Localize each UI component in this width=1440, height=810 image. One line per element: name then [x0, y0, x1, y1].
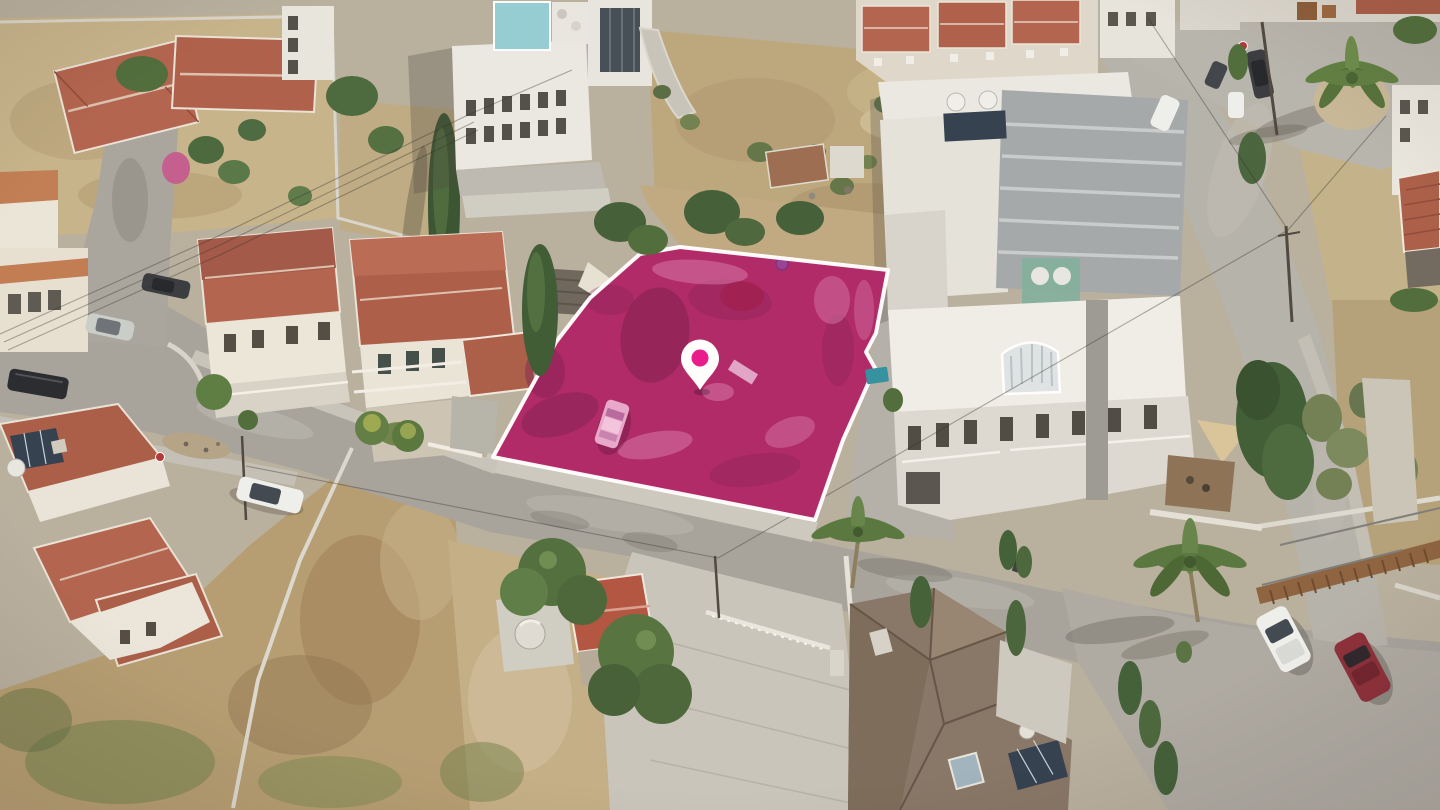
- aerial-photo-canvas: Aerial drone view of a sunlit residentia…: [0, 0, 1440, 810]
- warm-cast-overlay: [0, 0, 1440, 810]
- aerial-photo: Aerial drone view of a sunlit residentia…: [0, 0, 1440, 810]
